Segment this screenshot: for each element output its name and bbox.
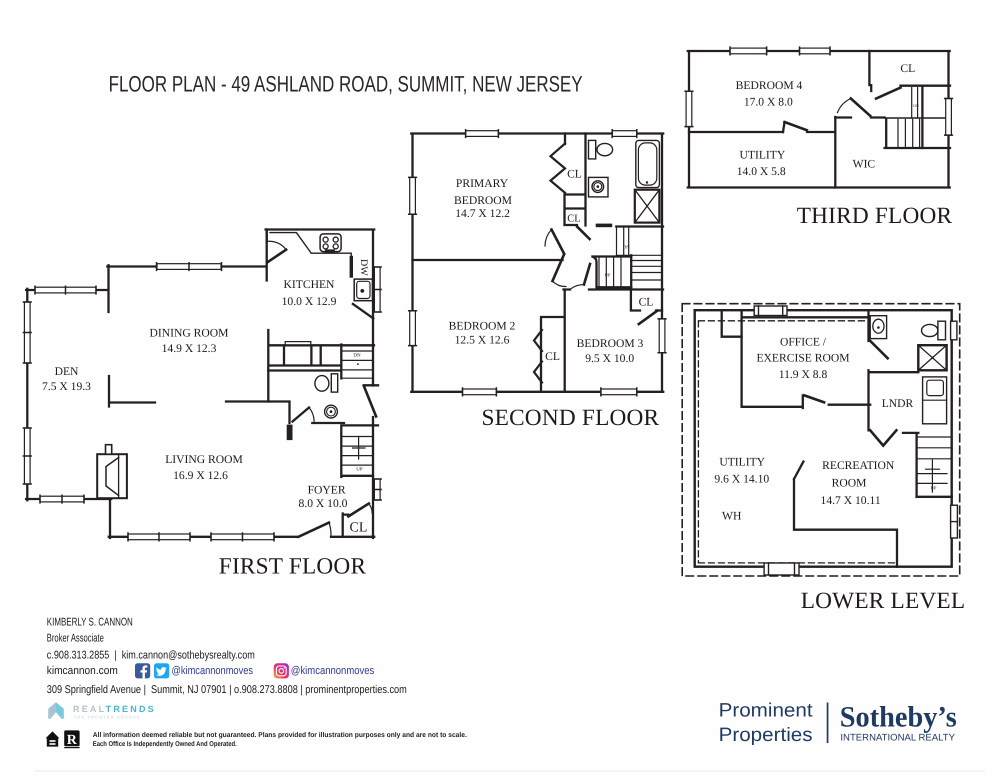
svg-text:DEN: DEN — [55, 365, 79, 378]
svg-text:14.9 X 12.3: 14.9 X 12.3 — [162, 342, 217, 355]
svg-text:14.7 X 12.2: 14.7 X 12.2 — [455, 207, 510, 220]
svg-text:16.9 X 12.6: 16.9 X 12.6 — [173, 469, 228, 482]
svg-text:309 Springfield Avenue | Summ: 309 Springfield Avenue | Summit, NJ 0790… — [47, 684, 407, 696]
svg-text:BEDROOM 2: BEDROOM 2 — [449, 320, 516, 333]
svg-text:LIVING ROOM: LIVING ROOM — [165, 453, 243, 466]
svg-text:UTILITY: UTILITY — [719, 456, 765, 469]
svg-text:8.0 X 10.0: 8.0 X 10.0 — [299, 497, 348, 510]
svg-text:CL: CL — [567, 168, 582, 181]
svg-text:WH: WH — [722, 510, 742, 523]
svg-text:12.5 X 12.6: 12.5 X 12.6 — [455, 334, 510, 347]
svg-text:11.9 X 8.8: 11.9 X 8.8 — [779, 368, 828, 381]
svg-text:UTILITY: UTILITY — [740, 149, 786, 162]
svg-text:UP: UP — [356, 467, 363, 473]
svg-text:UP: UP — [931, 486, 937, 491]
svg-text:14.0 X 5.8: 14.0 X 5.8 — [737, 165, 786, 178]
svg-text:BEDROOM 4: BEDROOM 4 — [736, 79, 803, 92]
svg-text:REALTRENDS: REALTRENDS — [73, 704, 156, 714]
svg-text:17.0 X 8.0: 17.0 X 8.0 — [744, 96, 793, 109]
svg-text:Sotheby’s: Sotheby’s — [840, 702, 957, 734]
svg-text:RECREATION: RECREATION — [822, 459, 895, 472]
svg-text:kimcannon.com: kimcannon.com — [47, 665, 118, 677]
svg-text:FOYER: FOYER — [308, 483, 346, 496]
svg-text:Properties: Properties — [719, 724, 813, 746]
svg-text:Each Office Is Independently O: Each Office Is Independently Owned And O… — [93, 740, 237, 748]
svg-text:DINING ROOM: DINING ROOM — [150, 326, 229, 339]
svg-text:THE TRUSTED SOURCE: THE TRUSTED SOURCE — [74, 716, 141, 720]
svg-text:WIC: WIC — [853, 157, 876, 170]
svg-text:c.908.313.2855 | kim.cannon@: c.908.313.2855 | kim.cannon@sothebysreal… — [47, 649, 255, 661]
svg-text:LNDR: LNDR — [882, 397, 914, 410]
svg-text:7.5 X 19.3: 7.5 X 19.3 — [42, 380, 91, 393]
svg-text:Broker Associate: Broker Associate — [47, 633, 104, 645]
svg-text:@kimcannonmoves: @kimcannonmoves — [291, 665, 375, 677]
svg-text:14.7 X 10.11: 14.7 X 10.11 — [821, 494, 881, 507]
svg-text:All information deemed reliabl: All information deemed reliable but not … — [93, 731, 467, 739]
svg-text:CL: CL — [900, 62, 915, 75]
svg-text:UP: UP — [605, 273, 611, 278]
svg-text:BEDROOM: BEDROOM — [454, 194, 512, 207]
svg-text:9.5 X 10.0: 9.5 X 10.0 — [585, 352, 634, 365]
svg-text:CL: CL — [545, 350, 560, 363]
svg-text:ROOM: ROOM — [832, 476, 867, 489]
svg-text:9.6 X 14.10: 9.6 X 14.10 — [714, 473, 769, 486]
svg-text:PRIMARY: PRIMARY — [456, 177, 509, 190]
svg-text:Prominent: Prominent — [719, 699, 814, 721]
svg-text:10.0 X 12.9: 10.0 X 12.9 — [282, 295, 337, 308]
svg-text:OFFICE /: OFFICE / — [780, 335, 827, 348]
svg-text:EXERCISE ROOM: EXERCISE ROOM — [756, 352, 849, 365]
svg-text:CL: CL — [639, 296, 654, 309]
svg-text:SECOND FLOOR: SECOND FLOOR — [481, 405, 659, 431]
svg-text:DN: DN — [913, 104, 919, 108]
svg-text:CL: CL — [567, 214, 580, 225]
svg-text:DW: DW — [358, 259, 369, 276]
svg-text:BEDROOM 3: BEDROOM 3 — [577, 337, 644, 350]
svg-text:THIRD FLOOR: THIRD FLOOR — [797, 203, 953, 229]
svg-text:CL: CL — [350, 521, 368, 536]
svg-text:FIRST FLOOR: FIRST FLOOR — [219, 554, 367, 580]
svg-text:@kimcannonmoves: @kimcannonmoves — [172, 665, 254, 677]
svg-text:KITCHEN: KITCHEN — [284, 278, 336, 291]
svg-text:DN: DN — [353, 353, 361, 359]
svg-text:INTERNATIONAL REALTY: INTERNATIONAL REALTY — [840, 733, 955, 744]
svg-text:KIMBERLY S. CANNON: KIMBERLY S. CANNON — [47, 616, 133, 628]
svg-text:DN: DN — [623, 245, 630, 250]
svg-text:R: R — [67, 733, 78, 748]
